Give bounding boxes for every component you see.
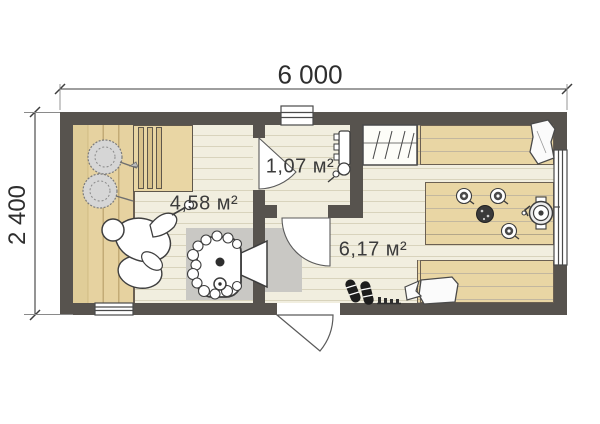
sauna-stove (188, 231, 268, 299)
dimension-height: 2 400 (4, 185, 32, 245)
shower-door-opening (277, 205, 328, 218)
room-label-sauna: 4,58 м² (170, 193, 238, 216)
coat-closet (363, 125, 417, 165)
room-label-shower: 1,07 м² (266, 156, 334, 179)
shoes (344, 278, 375, 306)
room-label-rest: 6,17 м² (339, 239, 407, 262)
shower-hall-door (282, 218, 330, 266)
stove-firebox (241, 241, 267, 287)
bath-brooms (83, 140, 138, 208)
window-bottom (95, 303, 133, 315)
plate (477, 206, 494, 223)
samovar (522, 197, 553, 229)
tea-set (457, 189, 520, 240)
towel-fold (405, 281, 421, 300)
dimension-width: 6 000 (277, 60, 342, 91)
floor-plan: 6 000 2 400 4,58 м² 1,07 м² 6,17 м² (0, 0, 600, 424)
window-right (554, 150, 567, 265)
window-top (281, 106, 313, 125)
pillow-bottom (419, 277, 458, 304)
entrance-opening (277, 303, 340, 315)
entrance-door (277, 315, 333, 351)
pillow-top (530, 120, 555, 164)
shoe-rack (377, 297, 401, 304)
